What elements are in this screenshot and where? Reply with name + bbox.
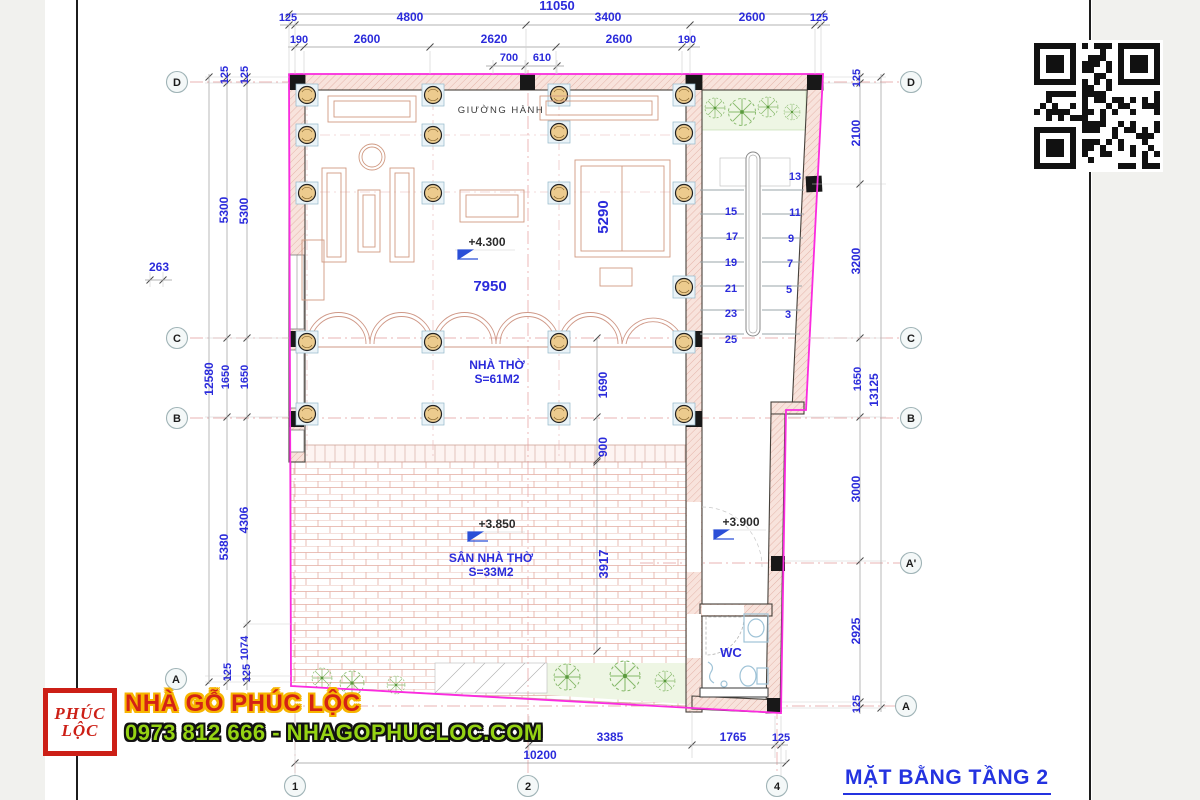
svg-text:11050: 11050: [539, 0, 574, 13]
svg-text:190: 190: [678, 34, 696, 46]
porch-arches: [305, 313, 686, 348]
svg-text:4800: 4800: [397, 10, 424, 24]
brand-banner: PHÚC LỘC NHÀ GỖ PHÚC LỘC 0973 812 666 - …: [43, 688, 543, 756]
svg-text:5300: 5300: [217, 196, 231, 223]
step-depth-dim: 900: [596, 437, 610, 457]
svg-text:1650: 1650: [852, 367, 864, 391]
svg-text:+3.900: +3.900: [722, 515, 759, 529]
yard-area: S=33M2: [468, 565, 513, 579]
brand-contact: 0973 812 666 - NHAGOPHUCLOC.COM: [125, 720, 543, 746]
svg-text:15: 15: [725, 206, 737, 218]
svg-text:1765: 1765: [720, 730, 747, 744]
svg-text:1650: 1650: [239, 365, 251, 389]
sheet-title: MẶT BẰNG TẦNG 2: [843, 766, 1051, 795]
svg-text:21: 21: [725, 283, 737, 295]
grid-right-A: A: [902, 701, 910, 713]
worship-room-name: NHÀ THỜ: [469, 357, 525, 372]
svg-text:2925: 2925: [849, 617, 863, 644]
svg-text:+3.850: +3.850: [478, 517, 515, 531]
brand-name: NHÀ GỖ PHÚC LỘC: [125, 690, 543, 718]
svg-text:125: 125: [241, 664, 253, 682]
svg-text:125: 125: [851, 695, 863, 713]
svg-text:13: 13: [789, 171, 801, 183]
floor-plan-svg: 15 17 19 21 23 25 13 11 9 7 5 3: [0, 0, 1200, 800]
svg-text:125: 125: [222, 663, 234, 681]
logo-text-bottom: LỘC: [62, 722, 99, 739]
svg-text:610: 610: [533, 52, 551, 64]
svg-text:2620: 2620: [481, 32, 508, 46]
svg-text:11: 11: [789, 207, 801, 219]
svg-text:13125: 13125: [867, 373, 881, 407]
svg-text:2100: 2100: [849, 119, 863, 146]
yard-depth-dim: 3917: [596, 550, 611, 579]
svg-text:5300: 5300: [237, 197, 251, 224]
phuc-loc-logo: PHÚC LỘC: [43, 688, 117, 756]
drawing-page: 15 17 19 21 23 25 13 11 9 7 5 3: [0, 0, 1200, 800]
corridor-label: GIƯỜNG HÀNH: [458, 105, 545, 116]
stair-step-numbers: 15 17 19 21 23 25 13 11 9 7 5 3: [725, 171, 801, 346]
wc-room: [702, 507, 768, 687]
staircase: 15 17 19 21 23 25 13 11 9 7 5 3: [700, 152, 804, 346]
porch-depth-dim: 1690: [596, 371, 610, 398]
grid-left-D: D: [173, 77, 181, 89]
worship-room-area: S=61M2: [474, 372, 519, 386]
grid-left-A: A: [172, 674, 180, 686]
svg-text:125: 125: [219, 66, 231, 84]
svg-text:125: 125: [772, 732, 790, 744]
svg-text:5380: 5380: [217, 533, 231, 560]
level-hall: +4.300: [455, 235, 515, 259]
level-corridor: +3.900: [712, 515, 766, 539]
svg-text:263: 263: [149, 260, 169, 274]
svg-text:25: 25: [725, 334, 737, 346]
svg-text:5: 5: [786, 284, 792, 296]
hall-width-dim: 7950: [473, 278, 506, 295]
grid-right-C: C: [907, 333, 915, 345]
grid-right-B: B: [907, 413, 915, 425]
svg-text:23: 23: [725, 308, 737, 320]
furniture: [302, 96, 670, 300]
svg-text:+4.300: +4.300: [468, 235, 505, 249]
svg-text:3400: 3400: [595, 10, 622, 24]
wc-threshold: [700, 688, 768, 697]
svg-text:125: 125: [851, 69, 863, 87]
svg-text:3: 3: [785, 309, 791, 321]
grid-bottom-1: 1: [292, 781, 298, 793]
svg-text:12580: 12580: [202, 362, 216, 396]
svg-text:3000: 3000: [849, 475, 863, 502]
svg-text:9: 9: [788, 233, 794, 245]
grid-bottom-2: 2: [525, 781, 531, 793]
svg-text:3385: 3385: [597, 730, 624, 744]
svg-text:1074: 1074: [239, 635, 251, 660]
svg-text:190: 190: [290, 34, 308, 46]
grid-left-B: B: [173, 413, 181, 425]
svg-text:125: 125: [810, 12, 828, 24]
altar-depth-dim: 5290: [595, 200, 612, 233]
wc-label: WC: [720, 645, 742, 660]
svg-text:2600: 2600: [606, 32, 633, 46]
svg-text:125: 125: [279, 12, 297, 24]
svg-text:700: 700: [500, 52, 518, 64]
svg-text:17: 17: [726, 231, 738, 243]
logo-text-top: PHÚC: [54, 705, 105, 722]
svg-text:125: 125: [239, 66, 251, 84]
svg-text:3200: 3200: [849, 247, 863, 274]
svg-text:2600: 2600: [739, 10, 766, 24]
grid-right-D: D: [907, 77, 915, 89]
svg-text:7: 7: [787, 258, 793, 270]
yard-name: SÂN NHÀ THỜ: [449, 550, 534, 565]
svg-text:2600: 2600: [354, 32, 381, 46]
svg-text:1650: 1650: [220, 365, 232, 389]
svg-text:4306: 4306: [237, 506, 251, 533]
grid-left-C: C: [173, 333, 181, 345]
qr-code: [1030, 40, 1163, 172]
svg-text:19: 19: [725, 257, 737, 269]
grid-bottom-4: 4: [774, 781, 781, 793]
grid-right-A2: A': [906, 558, 917, 570]
